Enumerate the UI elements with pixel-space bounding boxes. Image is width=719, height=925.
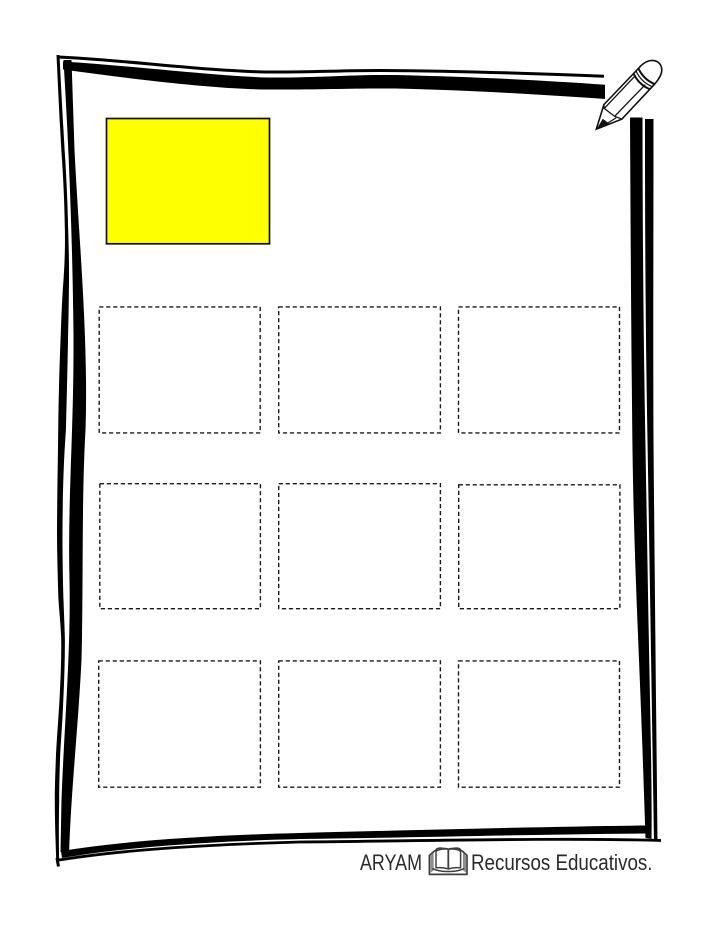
svg-text:Recursos Educativos.: Recursos Educativos. (471, 850, 653, 875)
svg-text:ARYAM: ARYAM (360, 850, 422, 875)
